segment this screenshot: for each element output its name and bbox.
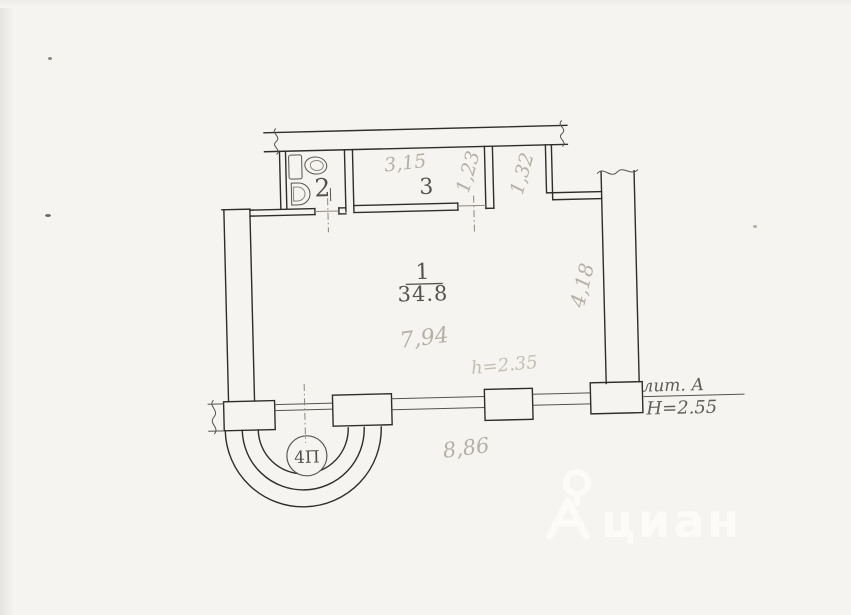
toilet-bowl bbox=[304, 156, 328, 175]
toilet-cistern bbox=[289, 155, 303, 179]
toilet-bowl-inner bbox=[310, 160, 324, 171]
room3-number: 3 bbox=[419, 175, 434, 200]
window1-line-a bbox=[275, 403, 333, 404]
room3-right-wall-inner bbox=[492, 146, 494, 208]
stub-wall-outer bbox=[545, 144, 601, 193]
corner-block-right bbox=[590, 382, 643, 414]
bay-mark-label: 4П bbox=[294, 448, 320, 469]
sink bbox=[291, 183, 310, 205]
window3-line-b bbox=[533, 404, 591, 405]
left-wall-outer bbox=[224, 210, 229, 402]
room2-room3-divider-inner bbox=[352, 150, 354, 212]
floor-plan-drawing: 4П 2 3 1 34.8 3,15 1,23 1,32 4,18 7,94 bbox=[0, 0, 851, 615]
window3-line-a bbox=[532, 393, 590, 394]
room2-left-wall-inner bbox=[285, 151, 286, 208]
window1-line-b bbox=[275, 409, 333, 410]
room2-bottom-wall-b bbox=[250, 215, 315, 217]
pier-middle-left bbox=[332, 394, 392, 426]
room3-bottom-wall-b bbox=[354, 210, 458, 213]
dim-room3-depth: 1,23 bbox=[452, 149, 485, 196]
map-pin-icon bbox=[566, 472, 588, 494]
liter-label: лит. А bbox=[642, 375, 704, 396]
wall-break-squiggle-bottom-left bbox=[212, 400, 216, 434]
wall-break-squiggle-right bbox=[560, 120, 564, 146]
axis-line-door-room3 bbox=[474, 196, 475, 232]
right-wall-outer bbox=[634, 171, 639, 382]
room2-bottom-wall-a bbox=[250, 209, 315, 211]
room3-bottom-wall-a bbox=[354, 203, 458, 206]
dim-room1-width: 7,94 bbox=[398, 323, 450, 354]
left-wall-inner bbox=[250, 209, 255, 401]
room2-number: 2 bbox=[314, 173, 331, 202]
room2-room3-divider-outer bbox=[344, 150, 346, 212]
watermark-letter-a-icon bbox=[550, 501, 586, 536]
door-threshold-room3 bbox=[458, 205, 486, 206]
wall-break-squiggle-top-right bbox=[597, 169, 638, 174]
left-wall-top-cap bbox=[222, 209, 250, 210]
right-wall-inner bbox=[601, 172, 606, 384]
axis-line-door-room2 bbox=[328, 198, 329, 232]
dim-ceiling-height: h=2.35 bbox=[470, 352, 538, 379]
watermark-group: циан bbox=[550, 472, 742, 548]
room3-right-wall-outer bbox=[484, 146, 486, 208]
door-threshold-room2 bbox=[315, 211, 339, 212]
pier-middle-right bbox=[484, 388, 533, 420]
room1-area: 34.8 bbox=[397, 281, 448, 306]
dim-room3-width: 3,15 bbox=[383, 150, 428, 177]
dim-right-side: 4,18 bbox=[565, 261, 599, 311]
pier-left bbox=[224, 401, 276, 431]
plan-group: 4П 2 3 1 34.8 3,15 1,23 1,32 4,18 7,94 bbox=[201, 116, 747, 509]
top-band-outer-line bbox=[264, 125, 567, 132]
watermark-text: циан bbox=[601, 494, 742, 548]
axis-line-bay bbox=[304, 384, 305, 443]
room2-left-wall-outer bbox=[279, 151, 280, 208]
scanned-floor-plan-page: 4П 2 3 1 34.8 3,15 1,23 1,32 4,18 7,94 bbox=[0, 0, 851, 615]
window2-line-a bbox=[392, 396, 485, 398]
window2-line-b bbox=[392, 407, 485, 409]
dim-facade-width: 8,86 bbox=[441, 433, 490, 463]
dim-entry-gap: 1,32 bbox=[506, 150, 539, 197]
building-height-label: Н=2.55 bbox=[645, 397, 717, 420]
sink-inner bbox=[293, 187, 305, 201]
